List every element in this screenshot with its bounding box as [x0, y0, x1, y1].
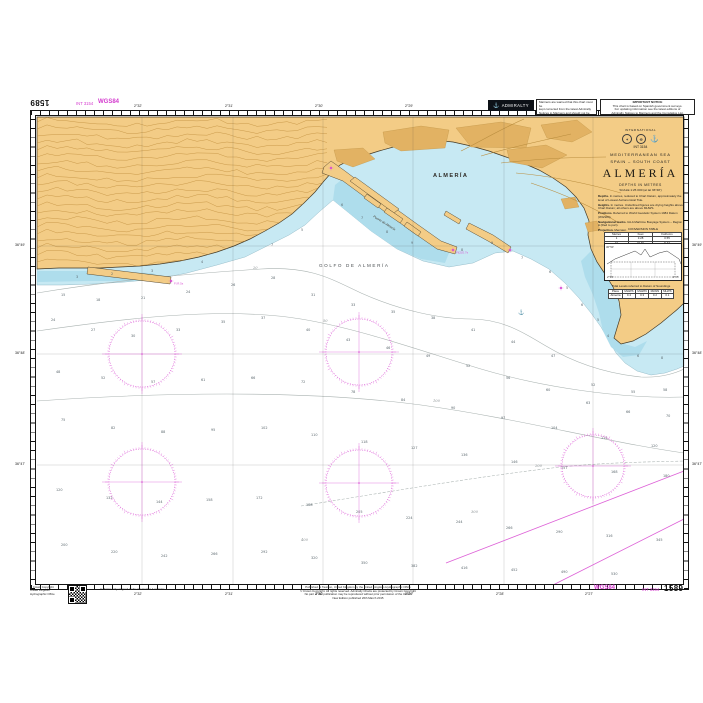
svg-text:44: 44	[511, 340, 515, 344]
svg-text:61: 61	[201, 378, 205, 382]
svg-text:244: 244	[456, 520, 462, 524]
svg-text:40: 40	[306, 328, 310, 332]
svg-text:18: 18	[96, 298, 100, 302]
svg-text:48: 48	[56, 370, 60, 374]
svg-text:66: 66	[251, 376, 255, 380]
svg-text:9: 9	[491, 241, 493, 245]
svg-text:188: 188	[306, 503, 312, 507]
datum-label-top-left: WGS84	[98, 99, 119, 105]
svg-text:9: 9	[411, 241, 413, 245]
svg-text:104: 104	[551, 426, 557, 430]
svg-text:382: 382	[411, 564, 417, 568]
svg-text:205: 205	[356, 510, 362, 514]
svg-text:52: 52	[101, 376, 105, 380]
svg-text:5: 5	[301, 228, 303, 232]
svg-text:55: 55	[631, 390, 635, 394]
important-notice-lines: This chart is based on Spanish governmen…	[603, 105, 692, 115]
svg-text:220: 220	[111, 550, 117, 554]
int-number-top-left: INT 3154	[76, 101, 93, 106]
svg-text:82: 82	[111, 426, 115, 430]
source-data-diagram: 2°30' 2°25' 36°50'	[604, 243, 682, 281]
anchor-icon: ⚓	[493, 103, 500, 109]
svg-text:4: 4	[201, 260, 203, 264]
svg-text:158: 158	[206, 498, 212, 502]
svg-text:530: 530	[611, 572, 617, 576]
svg-text:56: 56	[506, 376, 510, 380]
svg-text:172: 172	[256, 496, 262, 500]
svg-text:146: 146	[511, 460, 517, 464]
svg-text:43: 43	[346, 338, 350, 342]
svg-text:8: 8	[461, 248, 463, 252]
inset-lon-left: 2°30'	[607, 275, 613, 279]
svg-text:35: 35	[221, 320, 225, 324]
svg-text:7: 7	[271, 243, 273, 247]
tidal-table-title: Tidal Levels referred to Datum of Soundi…	[608, 284, 674, 288]
svg-text:46: 46	[386, 346, 390, 350]
svg-text:47: 47	[551, 354, 555, 358]
svg-text:144: 144	[156, 500, 162, 504]
graduation-left	[31, 111, 35, 589]
svg-text:200: 200	[61, 543, 67, 547]
international-label: INTERNATIONAL	[598, 128, 683, 132]
tidal-levels-table: Tidal Levels referred to Datum of Soundi…	[608, 284, 674, 299]
svg-text:292: 292	[261, 550, 267, 554]
svg-text:70: 70	[666, 414, 670, 418]
svg-text:350: 350	[361, 561, 367, 565]
svg-text:7: 7	[361, 216, 363, 220]
inset-coastline	[605, 244, 683, 282]
footer-side-note: A chart is only as good as the informati…	[100, 587, 165, 591]
svg-text:180: 180	[663, 474, 669, 478]
svg-text:6: 6	[637, 354, 639, 358]
svg-text:127: 127	[411, 446, 417, 450]
important-notice-box: IMPORTANT NOTICE This chart is based on …	[600, 99, 695, 115]
svg-text:78: 78	[351, 390, 355, 394]
mariners-warning-notice: Mariners are warned that this chart must…	[536, 99, 597, 115]
svg-text:24: 24	[186, 290, 190, 294]
svg-text:27: 27	[91, 328, 95, 332]
svg-text:30: 30	[131, 334, 135, 338]
svg-text:6: 6	[549, 270, 551, 274]
svg-text:20: 20	[252, 266, 258, 270]
svg-text:490: 490	[561, 570, 567, 574]
svg-text:416: 416	[461, 566, 467, 570]
svg-text:112: 112	[601, 436, 607, 440]
svg-text:24: 24	[51, 318, 55, 322]
svg-text:35: 35	[391, 310, 395, 314]
svg-text:290: 290	[556, 530, 562, 534]
gulf-label: GOLFO DE ALMERÍA	[319, 262, 390, 268]
svg-text:75: 75	[61, 418, 65, 422]
svg-text:41: 41	[471, 328, 475, 332]
svg-text:4: 4	[607, 334, 609, 338]
inset-lon-right: 2°25'	[673, 275, 679, 279]
admiralty-logo-text: ADMIRALTY	[502, 103, 529, 108]
svg-text:300: 300	[471, 510, 479, 514]
svg-text:6: 6	[341, 203, 343, 207]
svg-text:31: 31	[311, 293, 315, 297]
svg-text:168: 168	[611, 470, 617, 474]
int-series-number: INT 3154	[598, 145, 683, 149]
nautical-chart-sheet: 1589 INT 3154 WGS84 ⚓ ADMIRALTY Mariners…	[0, 0, 703, 703]
chart-title: ALMERÍA	[598, 166, 683, 181]
svg-text:224: 224	[406, 516, 412, 520]
svg-text:242: 242	[161, 554, 167, 558]
svg-text:95: 95	[211, 428, 215, 432]
svg-text:110: 110	[311, 433, 317, 437]
inset-lat-top: 36°50'	[606, 245, 614, 249]
publication-note: Published at Taunton, United Kingdom by …	[233, 586, 483, 601]
svg-text:8: 8	[386, 230, 388, 234]
svg-text:132: 132	[106, 496, 112, 500]
qr-code	[68, 585, 87, 604]
national-seal-icon: ☸	[636, 134, 646, 144]
datum-label-bottom-right: WGS84	[594, 585, 615, 591]
svg-text:102: 102	[261, 426, 267, 430]
svg-text:266: 266	[211, 552, 217, 556]
svg-text:49: 49	[426, 354, 430, 358]
svg-text:7: 7	[521, 256, 523, 260]
svg-text:66: 66	[626, 410, 630, 414]
depths-units-label: DEPTHS IN METRES	[598, 183, 683, 187]
svg-text:33: 33	[351, 303, 355, 307]
admiralty-logo-badge: ⚓ ADMIRALTY	[488, 100, 534, 111]
svg-text:52: 52	[591, 383, 595, 387]
svg-text:120: 120	[56, 488, 62, 492]
conversion-table-title: CONVERSION TABLE	[604, 227, 682, 231]
svg-text:58: 58	[663, 388, 667, 392]
svg-text:37: 37	[261, 316, 265, 320]
svg-text:15: 15	[61, 293, 65, 297]
svg-text:2: 2	[111, 272, 113, 276]
anchorage-icon: ⚓	[518, 309, 524, 316]
admiralty-crest-icon: ⚓	[650, 135, 659, 143]
svg-text:3: 3	[76, 275, 78, 279]
svg-text:5: 5	[597, 318, 599, 322]
svg-text:57: 57	[151, 380, 155, 384]
hydrographic-seals: ✶ ☸ ⚓	[598, 134, 683, 144]
graduation-right	[684, 111, 688, 589]
svg-text:26: 26	[231, 283, 235, 287]
svg-text:90: 90	[451, 406, 455, 410]
svg-text:Fl.R.5s: Fl.R.5s	[174, 281, 184, 285]
svg-text:345: 345	[656, 538, 662, 542]
svg-text:50: 50	[323, 319, 328, 323]
svg-text:200: 200	[534, 464, 543, 468]
copyright-block: © Crown CopyrightUnited KingdomHydrograp…	[30, 586, 66, 596]
svg-text:320: 320	[311, 556, 317, 560]
city-label: ALMERÍA	[433, 171, 468, 179]
svg-text:38: 38	[431, 316, 435, 320]
svg-text:118: 118	[361, 440, 367, 444]
svg-text:400: 400	[300, 538, 309, 542]
chart-number-bottom-right: 1589	[664, 584, 683, 593]
svg-text:3: 3	[151, 269, 153, 273]
chart-number-top-left: 1589	[30, 98, 49, 107]
int-number-bottom-right: INT 3154	[642, 587, 659, 592]
svg-text:21: 21	[141, 296, 145, 300]
sea-name: MEDITERRANEAN SEA	[598, 152, 683, 157]
svg-text:120: 120	[651, 444, 657, 448]
chart-frame: ALMERÍA GOLFO DE ALMERÍA Puerto de Almer…	[30, 110, 689, 590]
svg-text:266: 266	[506, 526, 512, 530]
chart-canvas: ALMERÍA GOLFO DE ALMERÍA Puerto de Almer…	[36, 116, 685, 586]
svg-text:136: 136	[461, 453, 467, 457]
svg-text:452: 452	[511, 568, 517, 572]
svg-text:84: 84	[401, 398, 405, 402]
scale-statement: SCALE 1:25 000 (at lat 36°48')	[598, 188, 683, 192]
svg-text:28: 28	[271, 276, 275, 280]
svg-text:8: 8	[661, 356, 663, 360]
svg-text:316: 316	[606, 534, 612, 538]
svg-text:60: 60	[546, 388, 550, 392]
region-name: SPAIN – SOUTH COAST	[598, 159, 683, 164]
svg-text:100: 100	[433, 399, 441, 403]
svg-text:88: 88	[161, 430, 165, 434]
svg-text:33: 33	[176, 328, 180, 332]
iho-seal-icon: ✶	[622, 134, 632, 144]
svg-text:63: 63	[586, 401, 590, 405]
svg-text:97: 97	[501, 416, 505, 420]
svg-text:5: 5	[566, 286, 568, 290]
svg-text:52: 52	[466, 364, 470, 368]
svg-text:6: 6	[581, 303, 583, 307]
svg-text:72: 72	[301, 380, 305, 384]
